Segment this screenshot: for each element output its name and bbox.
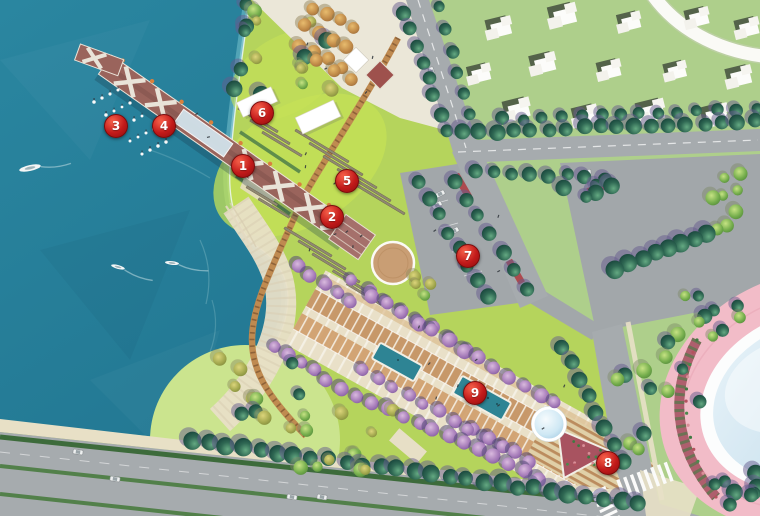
marker-9: 9 — [463, 381, 487, 405]
marker-4: 4 — [152, 114, 176, 138]
marker-5: 5 — [335, 169, 359, 193]
site-plan-svg — [0, 0, 760, 516]
round-pond — [533, 408, 565, 440]
marker-1: 1 — [231, 154, 255, 178]
master-plan-image: 1 2 3 4 5 6 7 8 9 — [0, 0, 760, 516]
marker-8: 8 — [596, 451, 620, 475]
marker-2: 2 — [320, 205, 344, 229]
marker-3: 3 — [104, 114, 128, 138]
marker-7: 7 — [456, 244, 480, 268]
marker-6: 6 — [250, 101, 274, 125]
